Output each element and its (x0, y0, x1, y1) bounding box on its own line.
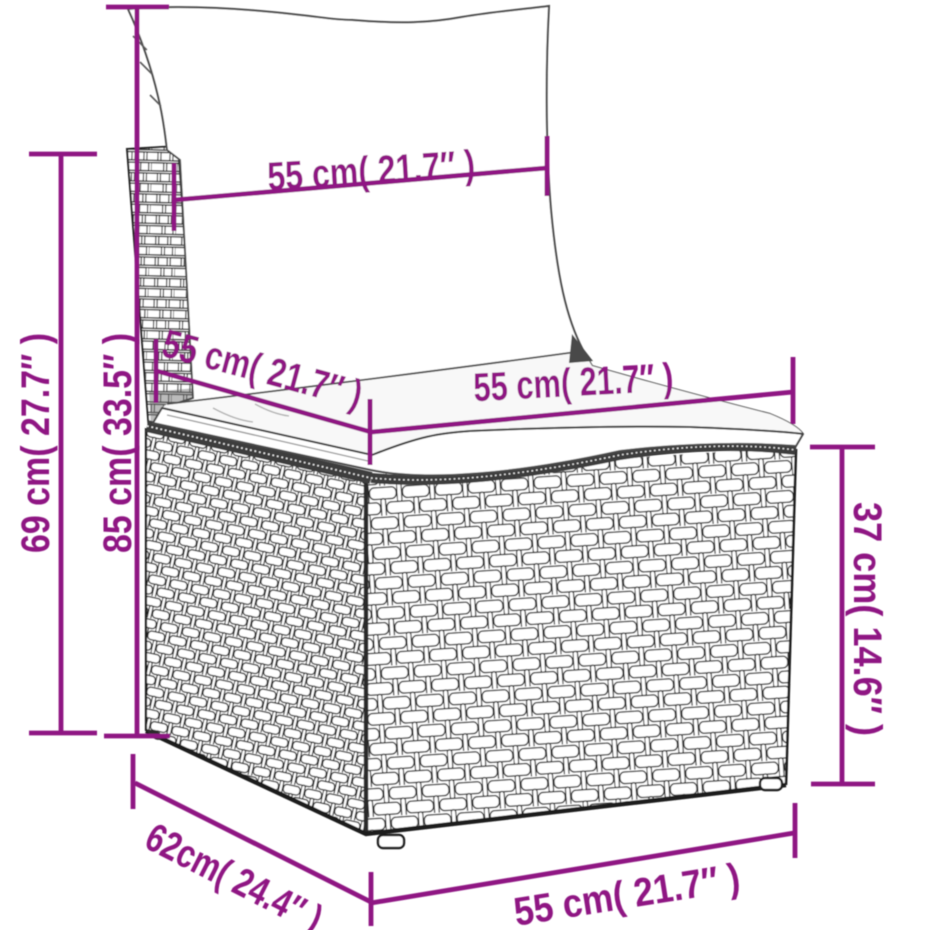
svg-text:37 cm( 14.6″ ): 37 cm( 14.6″ ) (845, 502, 889, 736)
svg-text:69 cm( 27.7″ ): 69 cm( 27.7″ ) (14, 333, 58, 553)
svg-text:85 cm( 33.5″ ): 85 cm( 33.5″ ) (96, 333, 140, 553)
svg-text:55 cm( 21.7″ ): 55 cm( 21.7″ ) (511, 856, 743, 930)
